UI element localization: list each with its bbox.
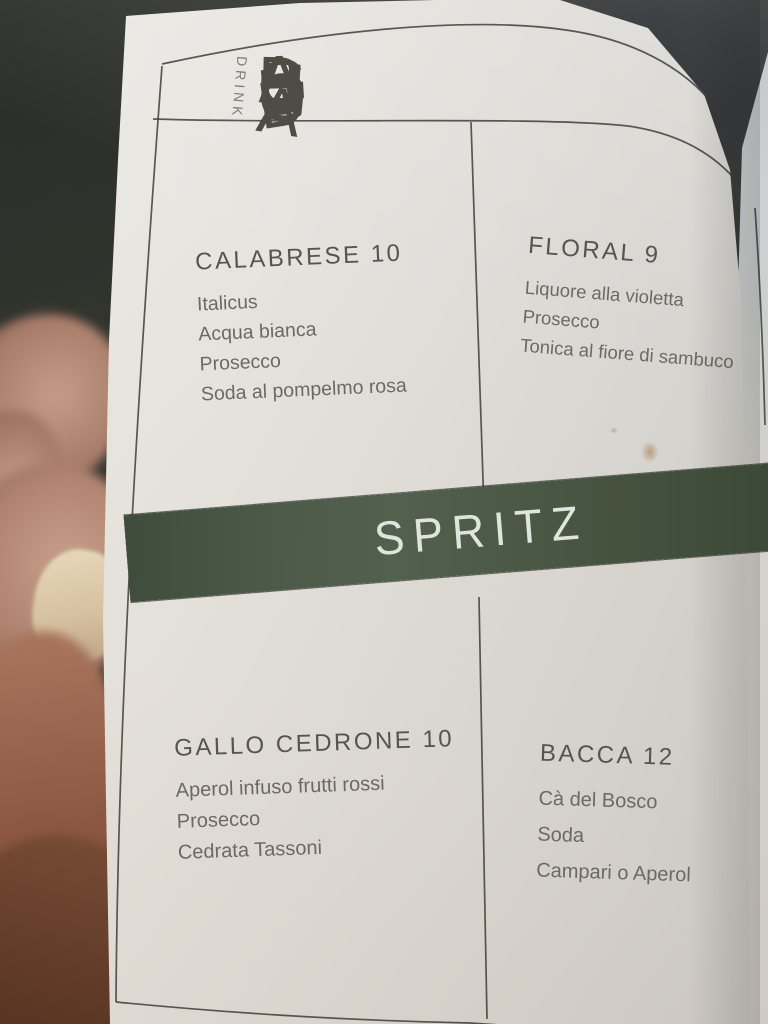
menu-item: Cà del Bosco xyxy=(538,781,694,822)
menu-title: BUGABUGA xyxy=(258,40,738,154)
item-list: Cà del Bosco Soda Campari o Aperol xyxy=(536,781,694,894)
section-calabrese: CALABRESE 10 Italicus Acqua bianca Prose… xyxy=(195,240,409,410)
section-heading: BACCA 12 xyxy=(539,740,694,773)
menu-item: Campari o Aperol xyxy=(536,853,692,894)
section-gallo-cedrone: GALLO CEDRONE 10 Aperol infuso frutti ro… xyxy=(174,725,459,869)
paper-stain xyxy=(610,427,618,434)
menu-photo-scene: DRINK BUGABUGA CALABRESE 10 Italicus Acq… xyxy=(0,0,768,1024)
item-list: Italicus Acqua bianca Prosecco Soda al p… xyxy=(196,281,408,410)
section-floral: FLORAL 9 Liquore alla violetta Prosecco … xyxy=(519,232,742,376)
item-list: Liquore alla violetta Prosecco Tonica al… xyxy=(519,273,739,377)
menu-item: Soda xyxy=(537,817,693,858)
spritz-band-label: SPRITZ xyxy=(342,495,590,569)
item-list: Aperol infuso frutti rossi Prosecco Cedr… xyxy=(175,766,458,869)
paper-stain xyxy=(641,441,659,463)
section-bacca: BACCA 12 Cà del Bosco Soda Campari o Ape… xyxy=(536,740,695,894)
